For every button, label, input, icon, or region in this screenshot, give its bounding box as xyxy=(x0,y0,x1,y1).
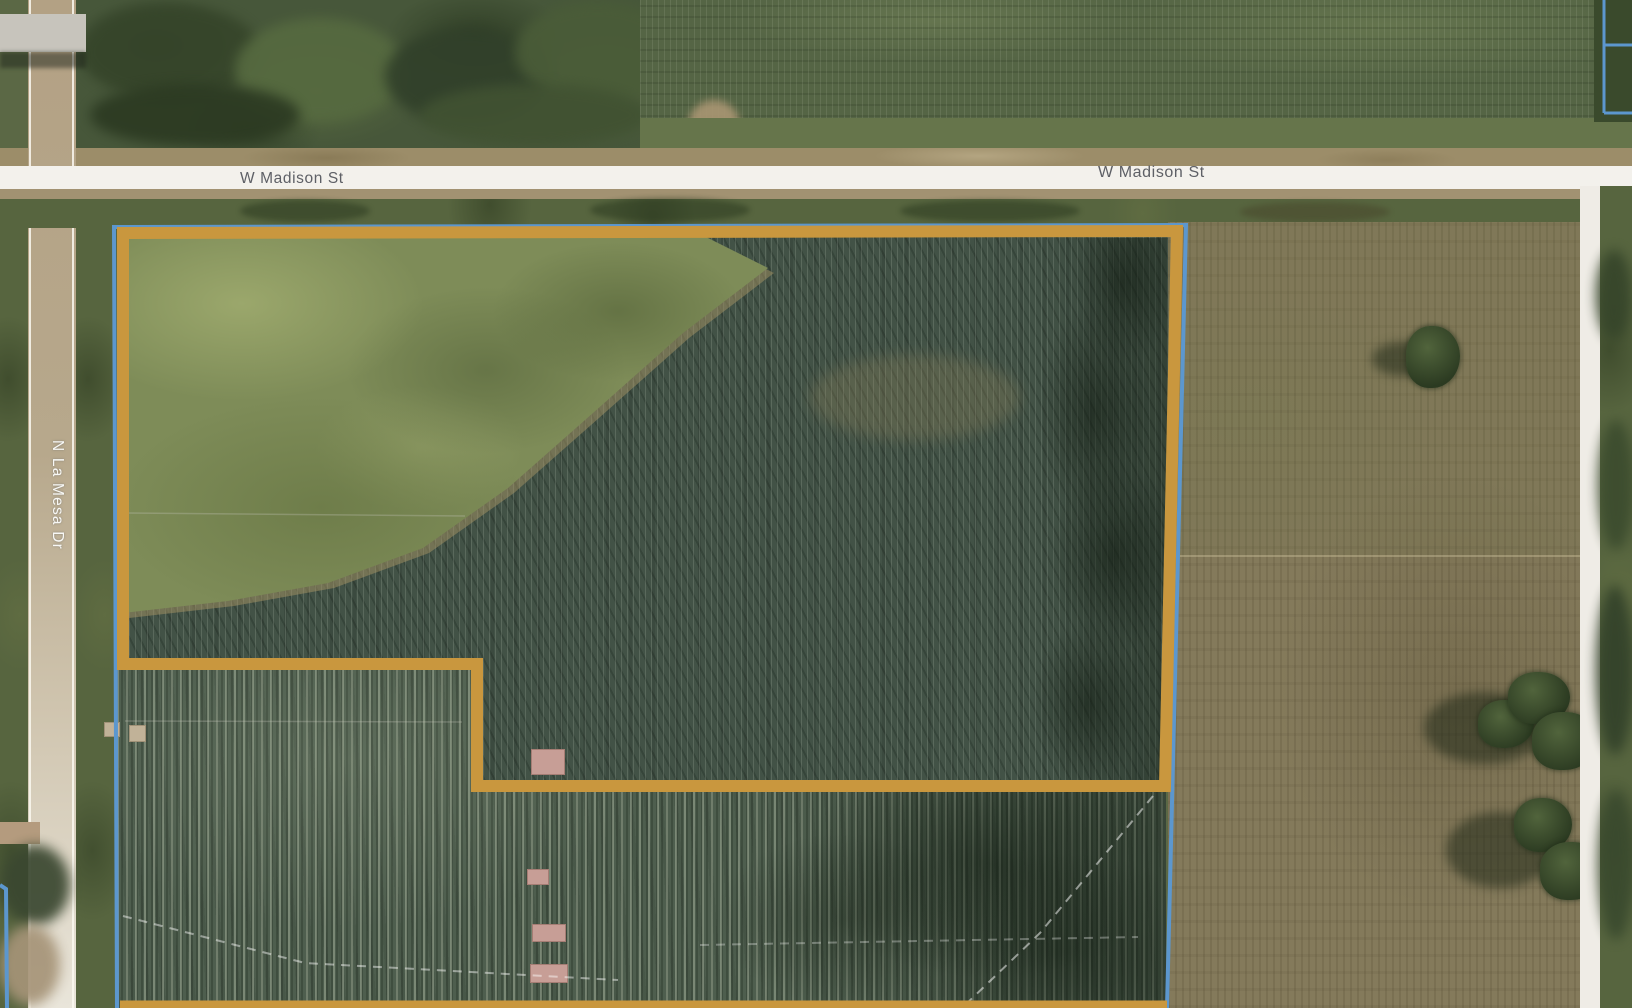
faint-field-line xyxy=(125,721,462,722)
parcel-boundary-blue-southwest xyxy=(0,885,7,1008)
highlighted-parcel-boundary[interactable] xyxy=(123,231,1177,786)
parcel-overlay-layer xyxy=(0,0,1632,1008)
street-label-w-madison-east: W Madison St xyxy=(1098,164,1205,182)
parcel-boundary-blue-northeast xyxy=(1604,0,1632,113)
dashed-survey-line xyxy=(123,916,618,980)
dashed-survey-line xyxy=(700,937,1138,945)
parcel-boundary-blue xyxy=(114,225,1186,1008)
street-label-w-madison-west: W Madison St xyxy=(240,170,344,188)
aerial-map-canvas[interactable]: W Madison St W Madison St N La Mesa Dr xyxy=(0,0,1632,1008)
dashed-survey-line xyxy=(962,796,1153,1008)
faint-field-line xyxy=(123,513,465,516)
street-label-n-la-mesa: N La Mesa Dr xyxy=(48,440,66,550)
